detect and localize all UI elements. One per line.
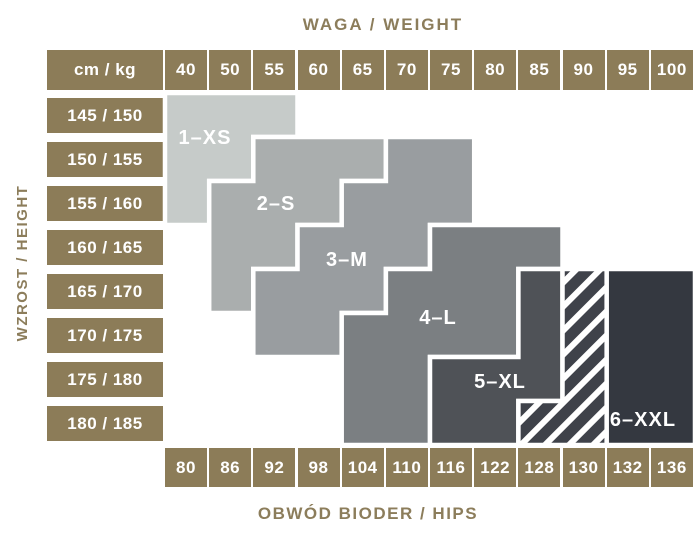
region-label-s: 2–S xyxy=(257,193,296,215)
region-label-xxl: 6–XXL xyxy=(610,409,676,431)
size-chart: WAGA / WEIGHT WZROST / HEIGHT OBWÓD BIOD… xyxy=(0,0,697,539)
region-label-l: 4–L xyxy=(419,307,456,329)
size-regions-canvas: 1–XS2–S3–M4–L5–XL6–XXL xyxy=(0,0,697,539)
region-label-xs: 1–XS xyxy=(179,127,232,149)
region-label-m: 3–M xyxy=(326,249,368,271)
region-label-xl: 5–XL xyxy=(474,371,526,393)
